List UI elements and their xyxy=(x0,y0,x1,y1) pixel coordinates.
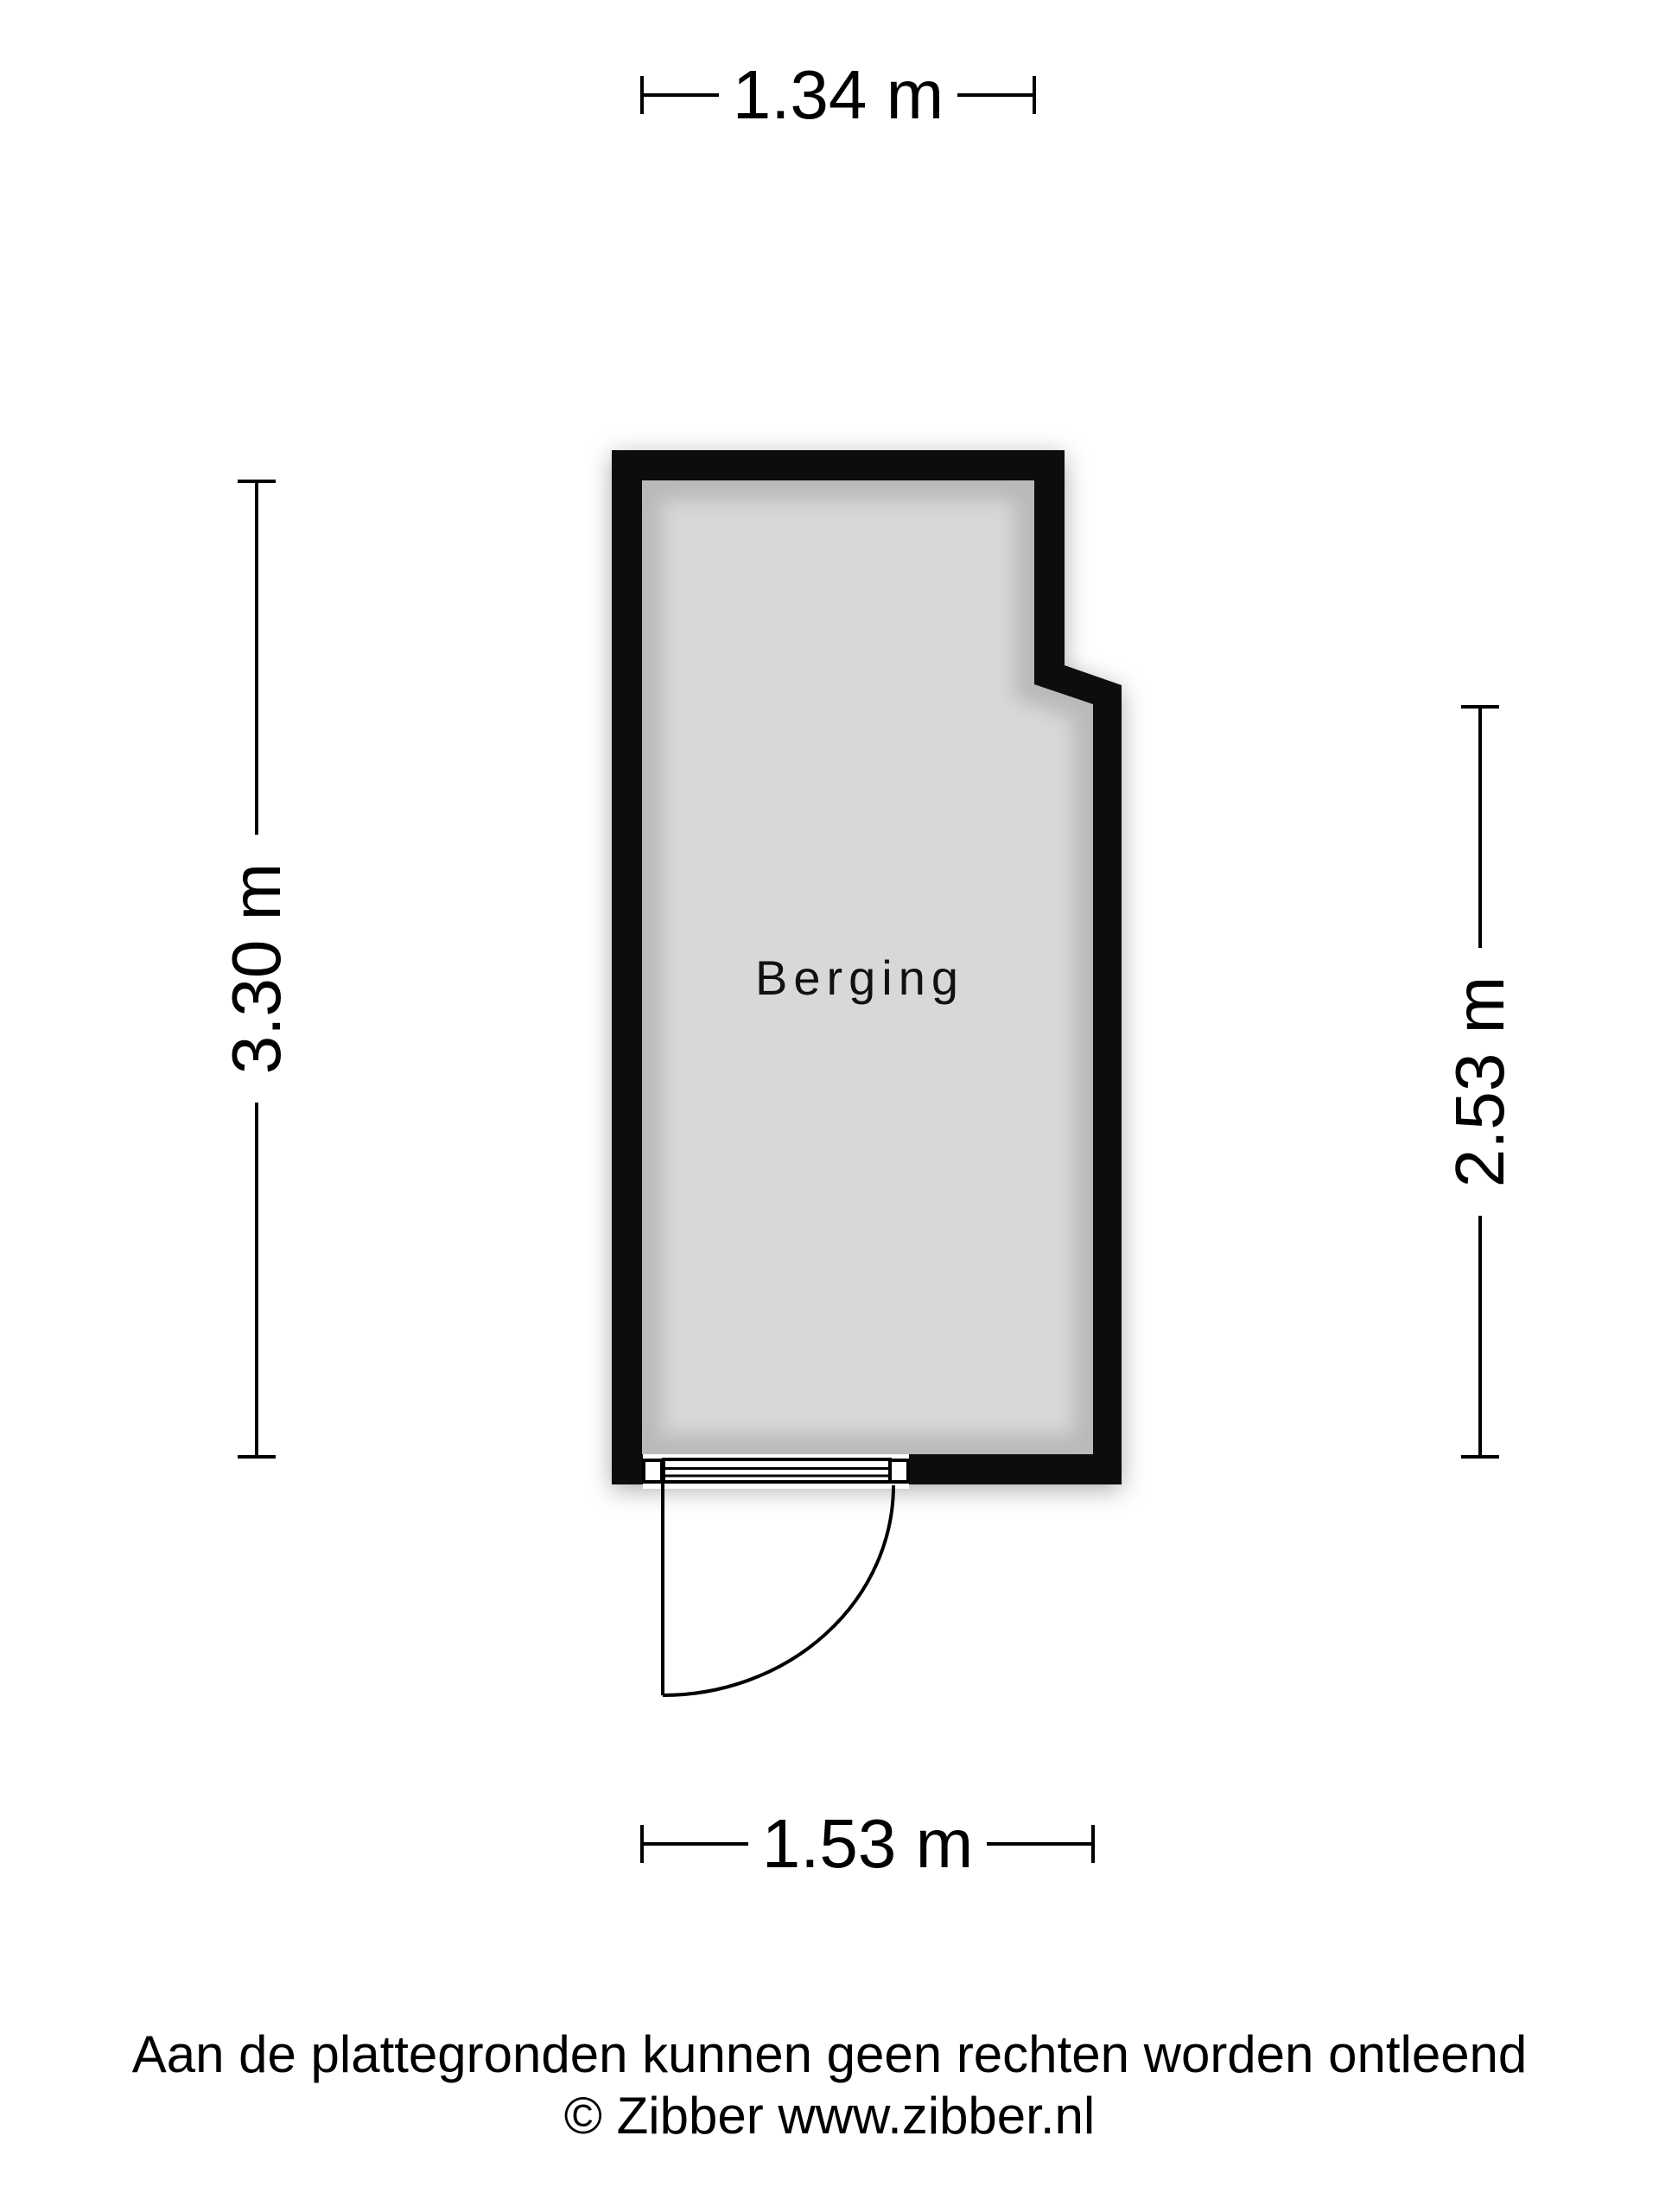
door-post-left xyxy=(644,1460,662,1482)
copyright-text: © Zibber www.zibber.nl xyxy=(0,2086,1659,2145)
disclaimer-text: Aan de plattegronden kunnen geen rechten… xyxy=(0,2024,1659,2084)
left-dimension-label: 3.30 m xyxy=(222,863,291,1075)
floorplan-page: 1.34 m 3.30 m 2.53 m 1.53 m Berging Aan … xyxy=(0,0,1659,2212)
door-swing-arc xyxy=(663,1485,893,1695)
top-dimension-label: 1.34 m xyxy=(733,60,944,130)
door-sill xyxy=(664,1459,890,1482)
right-dimension-label: 2.53 m xyxy=(1446,976,1515,1188)
bottom-dimension-label: 1.53 m xyxy=(762,1809,974,1878)
door-post-right xyxy=(890,1460,908,1482)
room-name-label: Berging xyxy=(755,954,964,1002)
